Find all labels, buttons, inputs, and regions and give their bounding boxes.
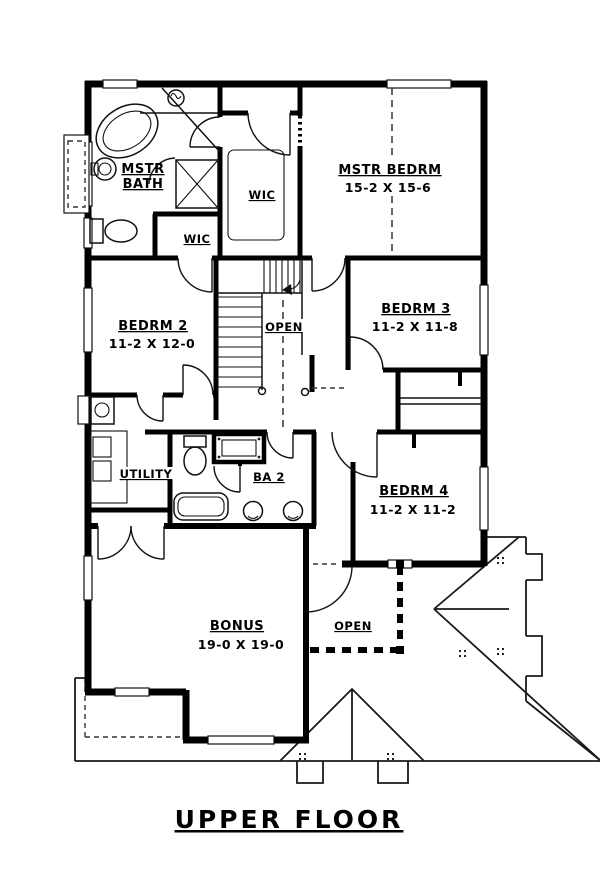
utility-bump [78, 396, 89, 424]
toilet [184, 436, 206, 475]
washer [91, 397, 114, 424]
window [84, 556, 92, 600]
room-label-mstr-bath-line1: MSTR [121, 162, 164, 177]
room-label-mstr-bath-line2: BATH [123, 177, 164, 192]
room-label-open-below: OPEN [334, 619, 372, 633]
railing-post [396, 646, 404, 654]
railing-post [396, 560, 404, 568]
toilet [90, 219, 137, 243]
fixtures [86, 88, 302, 521]
room-label-bonus: BONUS [210, 619, 264, 634]
window [387, 80, 451, 88]
window [84, 288, 92, 352]
window [115, 688, 149, 696]
vanity-sinks [244, 502, 303, 521]
room-label-bedrm-2: BEDRM 2 [118, 319, 188, 334]
room-dims-bonus: 19-0 X 19-0 [198, 637, 284, 652]
room-label-utility: UTILITY [120, 467, 173, 481]
shower-pan [214, 434, 264, 462]
room-dims-bedrm-4: 11-2 X 11-2 [370, 502, 456, 517]
room-label-mstr-bedrm: MSTR BEDRM [338, 163, 441, 178]
roof-outline [75, 537, 600, 783]
room-dims-bedrm-2: 11-2 X 12-0 [109, 336, 195, 351]
closet-shelf-lines [400, 398, 481, 404]
railing [310, 560, 404, 654]
room-label-bedrm-3: BEDRM 3 [381, 302, 451, 317]
room-label-wic-bedrm2: WIC [184, 232, 211, 246]
bathtub [174, 493, 228, 520]
room-label-bedrm-4: BEDRM 4 [379, 484, 449, 499]
room-dims-mstr-bedrm: 15-2 X 15-6 [345, 180, 431, 195]
room-labels: MSTR BATH WIC WIC MSTR BEDRM 15-2 X 15-6… [109, 160, 458, 834]
porch-dashed-line [85, 678, 183, 737]
window [480, 285, 488, 355]
window [480, 467, 488, 530]
room-label-open-stairwell: OPEN [265, 320, 303, 334]
plan-title: UPPER FLOOR [175, 805, 404, 834]
window [208, 736, 274, 744]
sink [91, 158, 116, 180]
shower [176, 160, 218, 208]
room-label-wic-master: WIC [249, 188, 276, 202]
window [103, 80, 137, 88]
newel-post [302, 389, 309, 396]
room-dims-bedrm-3: 11-2 X 11-8 [372, 319, 458, 334]
bathtub [86, 88, 220, 169]
room-label-ba-2: BA 2 [253, 470, 285, 484]
floor-plan-svg: MSTR BATH WIC WIC MSTR BEDRM 15-2 X 15-6… [0, 0, 600, 874]
